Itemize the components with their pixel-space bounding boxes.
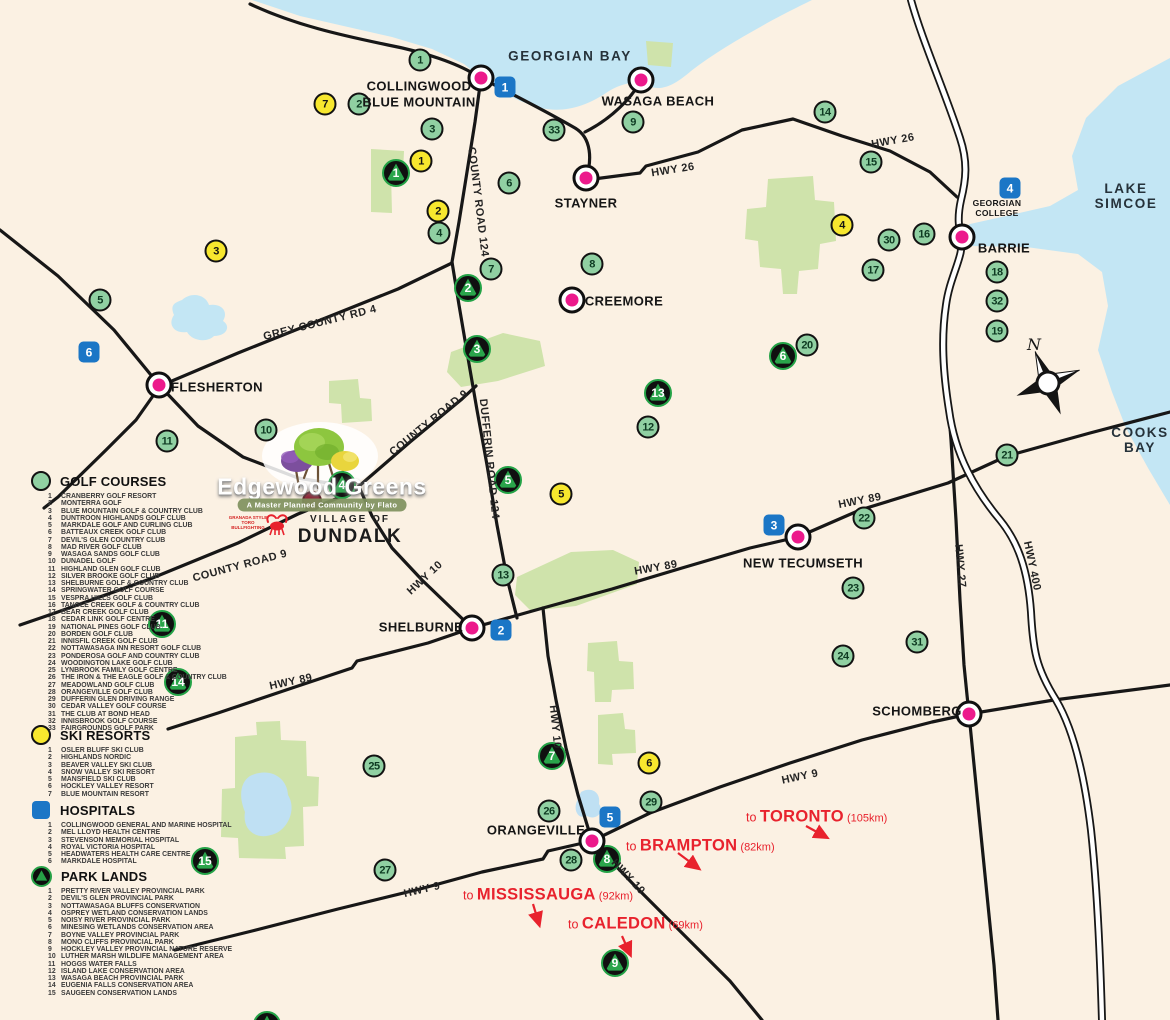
legend-item: 5MARKDALE GOLF AND CURLING CLUB xyxy=(48,522,227,529)
legend-item: 2DEVIL'S GLEN PROVINCIAL PARK xyxy=(48,895,232,902)
legend-hospitals-title: HOSPITALS xyxy=(60,803,135,818)
legend-item: 11HOGGS WATER FALLS xyxy=(48,961,232,968)
legend-item: 6MINESING WETLANDS CONSERVATION AREA xyxy=(48,924,232,931)
legend-item: 4OSPREY WETLAND CONSERVATION LANDS xyxy=(48,910,232,917)
legend-item: 9HOCKLEY VALLEY PROVINCIAL NATURE RESERV… xyxy=(48,946,232,953)
legend-golf-courses: GOLF COURSES 1CRANBERRY GOLF RESORT2MONT… xyxy=(31,470,227,732)
legend-item: 21INNISFIL CREEK GOLF CLUB xyxy=(48,638,227,645)
bull-caption-line2: BULLFIGHTING xyxy=(225,525,271,530)
legend-item: 31THE CLUB AT BOND HEAD xyxy=(48,711,227,718)
legend-item: 7BLUE MOUNTAIN RESORT xyxy=(48,791,155,798)
dundalk-text: DUNDALK xyxy=(298,526,402,548)
legend-item: 5MANSFIELD SKI CLUB xyxy=(48,776,155,783)
legend-item: 23PONDEROSA GOLF AND COUNTRY CLUB xyxy=(48,653,227,660)
legend-hospitals-list: 1COLLINGWOOD GENERAL AND MARINE HOSPITAL… xyxy=(31,822,232,866)
legend-item: 13WASAGA BEACH PROVINCIAL PARK xyxy=(48,975,232,982)
legend-ski-list: 1OSLER BLUFF SKI CLUB2HIGHLANDS NORDIC3B… xyxy=(31,747,155,798)
legend-item: 2HIGHLANDS NORDIC xyxy=(48,754,155,761)
legend-item: 27MEADOWLAND GOLF CLUB xyxy=(48,682,227,689)
park-marker-swatch-icon xyxy=(31,866,52,887)
legend-item: 8MAD RIVER GOLF CLUB xyxy=(48,544,227,551)
compass-n-label: N xyxy=(1026,335,1042,354)
legend-item: 3STEVENSON MEMORIAL HOSPITAL xyxy=(48,837,232,844)
legend-item: 22NOTTAWASAGA INN RESORT GOLF CLUB xyxy=(48,645,227,652)
legend-item: 6BATTEAUX CREEK GOLF CLUB xyxy=(48,529,227,536)
bull-caption: GRANADA STYLE TORO BULLFIGHTING xyxy=(225,515,271,530)
legend-item: 12SILVER BROOKE GOLF CLUB xyxy=(48,573,227,580)
edgewood-greens-area-map: N 12345678910111213141516171819202122232… xyxy=(0,0,1170,1020)
legend-item: 29DUFFERIN GLEN DRIVING RANGE xyxy=(48,696,227,703)
ski-marker-swatch-icon xyxy=(31,725,51,745)
village-of-text: VILLAGE OF xyxy=(298,514,402,525)
village-of-dundalk-label: VILLAGE OF DUNDALK xyxy=(298,514,402,548)
legend-item: 13SHELBURNE GOLF & COUNTRY CLUB xyxy=(48,580,227,587)
legend-item: 18CEDAR LINK GOLF CENTRE xyxy=(48,616,227,623)
legend-item: 8MONO CLIFFS PROVINCIAL PARK xyxy=(48,939,232,946)
legend-item: 5HEADWATERS HEALTH CARE CENTRE xyxy=(48,851,232,858)
legend-item: 4DUNTROON HIGHLANDS GOLF CLUB xyxy=(48,515,227,522)
legend-item: 1PRETTY RIVER VALLEY PROVINCIAL PARK xyxy=(48,888,232,895)
legend-park-lands: PARK LANDS 1PRETTY RIVER VALLEY PROVINCI… xyxy=(31,865,232,997)
legend-parks-title: PARK LANDS xyxy=(61,869,147,884)
legend-item: 4ROYAL VICTORIA HOSPITAL xyxy=(48,844,232,851)
legend-item: 5NOISY RIVER PROVINCIAL PARK xyxy=(48,917,232,924)
legend-item: 2MONTERRA GOLF xyxy=(48,500,227,507)
legend-item: 30CEDAR VALLEY GOLF COURSE xyxy=(48,703,227,710)
legend-item: 15SAUGEEN CONSERVATION LANDS xyxy=(48,990,232,997)
legend-golf-title: GOLF COURSES xyxy=(60,474,166,489)
hospital-marker-swatch-icon xyxy=(32,801,50,819)
legend-item: 16TANGLE CREEK GOLF & COUNTRY CLUB xyxy=(48,602,227,609)
legend-ski-title: SKI RESORTS xyxy=(60,728,150,743)
legend-item: 19NATIONAL PINES GOLF CLUB xyxy=(48,624,227,631)
legend-item: 15VESPRA HILLS GOLF CLUB xyxy=(48,595,227,602)
direction-arrow-mississauga xyxy=(533,904,539,924)
legend-item: 2MEL LLOYD HEALTH CENTRE xyxy=(48,829,232,836)
legend-item: 1COLLINGWOOD GENERAL AND MARINE HOSPITAL xyxy=(48,822,232,829)
legend-item: 26THE IRON & THE EAGLE GOLF & COUNTRY CL… xyxy=(48,674,227,681)
legend-item: 3BLUE MOUNTAIN GOLF & COUNTRY CLUB xyxy=(48,508,227,515)
legend-item: 20BORDEN GOLF CLUB xyxy=(48,631,227,638)
edgewood-logo-title: Edgewood Greens xyxy=(217,474,426,501)
legend-item: 1CRANBERRY GOLF RESORT xyxy=(48,493,227,500)
legend-item: 6HOCKLEY VALLEY RESORT xyxy=(48,783,155,790)
legend-item: 12ISLAND LAKE CONSERVATION AREA xyxy=(48,968,232,975)
direction-arrow-caledon xyxy=(622,936,630,954)
legend-item: 14EUGENIA FALLS CONSERVATION AREA xyxy=(48,982,232,989)
legend-item: 7DEVIL'S GLEN COUNTRY CLUB xyxy=(48,537,227,544)
legend-item: 3NOTTAWASAGA BLUFFS CONSERVATION xyxy=(48,903,232,910)
legend-hospitals: HOSPITALS 1COLLINGWOOD GENERAL AND MARIN… xyxy=(31,799,232,866)
legend-item: 4SNOW VALLEY SKI RESORT xyxy=(48,769,155,776)
legend-item: 24WOODINGTON LAKE GOLF CLUB xyxy=(48,660,227,667)
legend-item: 1OSLER BLUFF SKI CLUB xyxy=(48,747,155,754)
edgewood-logo-tagline: A Master Planned Community by Flato xyxy=(238,499,407,512)
bull-caption-line1: GRANADA STYLE TORO xyxy=(225,515,271,525)
legend-golf-list: 1CRANBERRY GOLF RESORT2MONTERRA GOLF3BLU… xyxy=(31,493,227,732)
legend-ski-resorts: SKI RESORTS 1OSLER BLUFF SKI CLUB2HIGHLA… xyxy=(31,724,155,798)
legend-item: 11HIGHLAND GLEN GOLF CLUB xyxy=(48,566,227,573)
direction-arrow-brampton xyxy=(678,853,698,868)
compass-rose: N xyxy=(1004,335,1093,427)
legend-item: 10DUNADEL GOLF xyxy=(48,558,227,565)
legend-parks-list: 1PRETTY RIVER VALLEY PROVINCIAL PARK2DEV… xyxy=(31,888,232,997)
direction-arrow-toronto xyxy=(806,826,826,837)
legend-item: 17BEAR CREEK GOLF CLUB xyxy=(48,609,227,616)
golf-marker-swatch-icon xyxy=(31,471,51,491)
legend-item: 7BOYNE VALLEY PROVINCIAL PARK xyxy=(48,932,232,939)
legend-item: 9WASAGA SANDS GOLF CLUB xyxy=(48,551,227,558)
legend-item: 25LYNBROOK FAMILY GOLF CENTRE xyxy=(48,667,227,674)
legend-item: 28ORANGEVILLE GOLF CLUB xyxy=(48,689,227,696)
legend-item: 14SPRINGWATER GOLF COURSE xyxy=(48,587,227,594)
legend-item: 3BEAVER VALLEY SKI CLUB xyxy=(48,762,155,769)
legend-item: 10LUTHER MARSH WILDLIFE MANAGEMENT AREA xyxy=(48,953,232,960)
